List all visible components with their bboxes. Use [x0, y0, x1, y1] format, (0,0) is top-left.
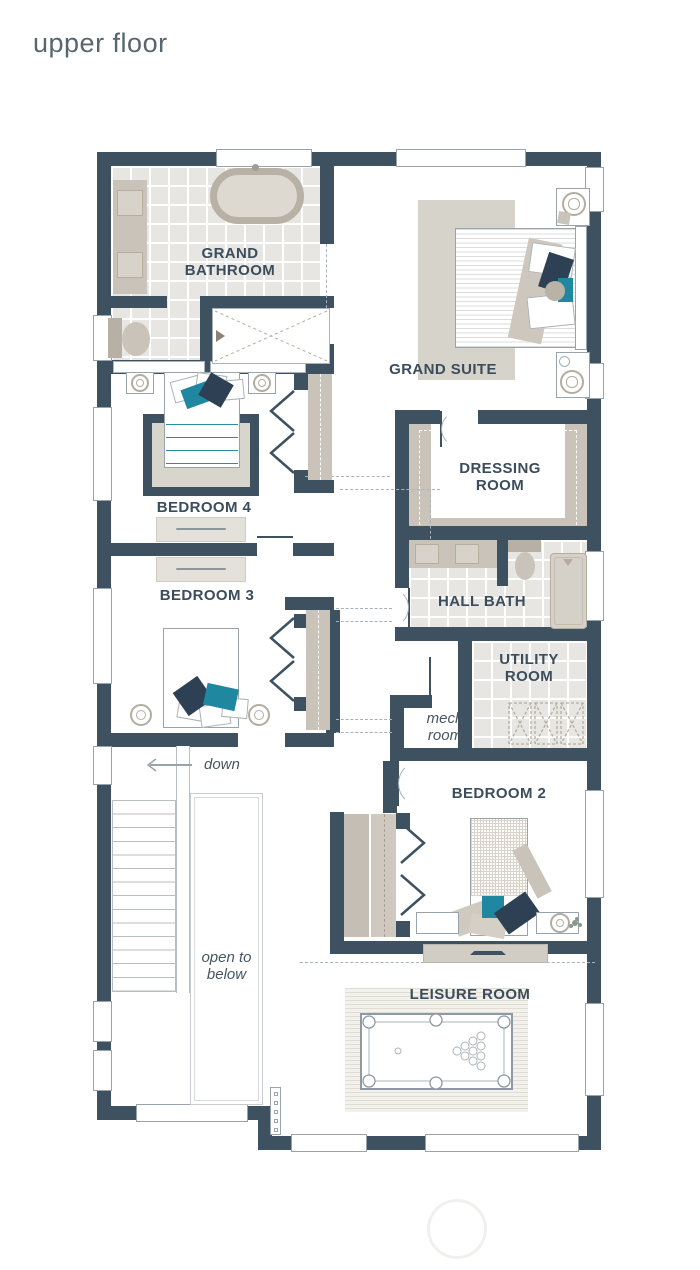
chevron-door-icon [268, 390, 296, 432]
room-label-leisure-room: LEISURE ROOM [368, 987, 572, 1004]
faucet-icon [563, 559, 573, 566]
page-title: upper floor [33, 28, 168, 59]
chevron-door-icon [399, 874, 427, 916]
window [425, 1134, 579, 1152]
window [396, 149, 526, 167]
down-arrow-icon [146, 758, 158, 772]
wall-segment [395, 526, 601, 540]
wall-segment [285, 733, 334, 747]
room-label-bedroom-2: BEDROOM 2 [409, 786, 589, 803]
window [93, 588, 112, 684]
nightstand [416, 912, 459, 934]
dresser-handle [176, 568, 226, 570]
headboard [575, 226, 587, 350]
pool-table [360, 1013, 513, 1090]
decor [559, 356, 570, 367]
wall-segment [478, 410, 601, 424]
door-leaf [429, 657, 431, 695]
wall-segment [97, 543, 257, 556]
bathtub-inner [554, 557, 583, 625]
wall-segment [293, 543, 334, 556]
closet-shelf [308, 374, 332, 480]
wall-segment [395, 410, 409, 540]
toilet-icon [122, 322, 150, 356]
window [93, 1050, 112, 1091]
closet-shelf [344, 814, 369, 937]
toilet-icon [515, 552, 535, 580]
wall-segment [320, 152, 334, 244]
window [585, 790, 604, 898]
plant-icon [572, 920, 578, 926]
wall-segment [200, 296, 334, 308]
stairs [112, 800, 176, 992]
lamp-icon [253, 374, 271, 392]
wall-segment [396, 921, 410, 937]
cabinet-strip [270, 1087, 281, 1135]
wall-segment [330, 812, 344, 942]
dresser-handle [176, 528, 226, 530]
window [585, 1003, 604, 1096]
washer-dryer-icon [508, 702, 584, 745]
lamp-icon [550, 913, 570, 933]
window [93, 746, 112, 785]
room-label-mech-room: mech room [414, 710, 476, 745]
window [291, 1134, 367, 1152]
wall-segment [285, 597, 334, 610]
wall-segment [404, 695, 432, 708]
wall-segment [294, 480, 334, 493]
wall-segment [587, 152, 601, 1150]
wall-segment [294, 374, 308, 390]
sink [415, 544, 439, 564]
wall-segment [97, 733, 238, 747]
pillow [545, 281, 565, 301]
sink [117, 190, 143, 216]
lamp-icon [560, 370, 584, 394]
sink [455, 544, 479, 564]
wall-segment [395, 410, 440, 424]
wall-segment [390, 748, 601, 761]
room-label-grand-bathroom: GRAND BATHROOM [165, 246, 295, 280]
closet-shelf [306, 610, 330, 730]
chevron-door-icon [268, 617, 296, 659]
wall-segment [111, 296, 167, 308]
window [136, 1104, 248, 1122]
shower [212, 308, 330, 364]
wall-segment [497, 540, 508, 586]
chevron-door-icon [268, 432, 296, 474]
chevron-door-icon [399, 822, 427, 864]
wall-segment [383, 761, 397, 813]
decor [557, 211, 571, 225]
window [93, 407, 112, 501]
room-label-utility-room: UTILITY ROOM [484, 652, 574, 686]
window [93, 1001, 112, 1042]
wall-segment [200, 296, 212, 370]
dashed-ceiling-line [336, 719, 392, 720]
bathtub-icon [210, 168, 304, 224]
window [216, 149, 312, 167]
room-label-bedroom-3: BEDROOM 3 [122, 588, 292, 605]
bed-stripes [166, 412, 238, 466]
room-label-grand-suite: GRAND SUITE [353, 362, 533, 379]
annotation-open-to-below: open to below [190, 949, 263, 984]
faucet-icon [252, 164, 259, 171]
annotation-down: down [204, 756, 264, 773]
room-label-bedroom-4: BEDROOM 4 [119, 500, 289, 517]
wall-segment [395, 627, 601, 641]
floor-plan: upper floor [0, 0, 700, 1270]
toilet-icon [508, 540, 541, 552]
dresser-handle [470, 951, 506, 955]
door-swing-arc [441, 411, 477, 447]
dashed-ceiling-line [430, 489, 431, 539]
lamp-icon [131, 374, 149, 392]
room-label-dressing-room: DRESSING ROOM [445, 461, 555, 495]
toilet-icon [108, 318, 122, 358]
watermark-circle [427, 1199, 487, 1259]
stair-handrail [176, 746, 190, 993]
lamp-icon [130, 704, 152, 726]
lamp-icon [248, 704, 270, 726]
wall-segment [395, 540, 409, 588]
sink [117, 252, 143, 278]
door-leaf [257, 536, 293, 538]
dashed-ceiling-line [340, 489, 440, 490]
dashed-ceiling-line [336, 732, 392, 733]
chevron-door-icon [268, 660, 296, 702]
window [585, 551, 604, 621]
room-label-hall-bath: HALL BATH [400, 594, 564, 611]
closet-shelf [371, 814, 396, 937]
